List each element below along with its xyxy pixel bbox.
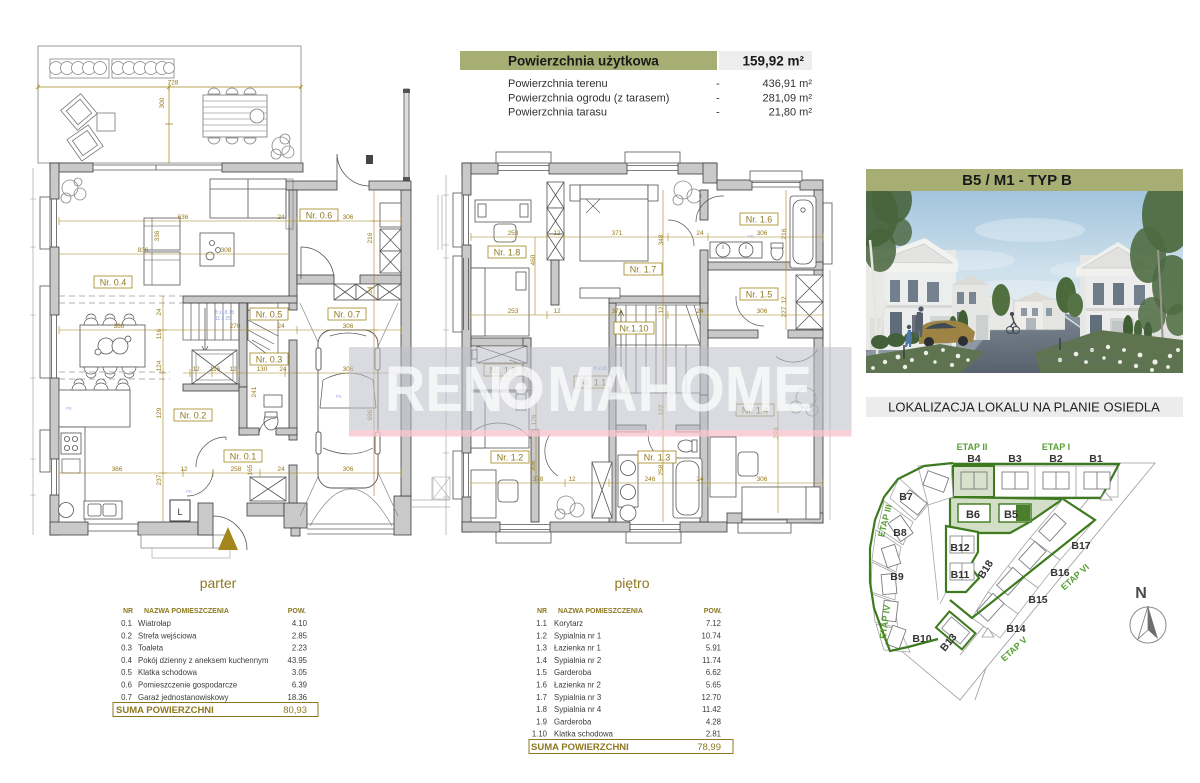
svg-text:Powierzchnia ogrodu (z tarasem: Powierzchnia ogrodu (z tarasem) [508,93,669,105]
svg-text:Sypialnia nr 3: Sypialnia nr 3 [554,693,601,702]
svg-text:Nr. 1.6: Nr. 1.6 [746,215,773,225]
svg-text:12: 12 [229,366,237,373]
svg-text:348: 348 [658,234,665,245]
svg-text:24: 24 [696,230,704,237]
svg-text:B5 / M1 - TYP B: B5 / M1 - TYP B [962,172,1072,189]
svg-text:Nr. 1.2: Nr. 1.2 [497,453,524,463]
svg-text:253: 253 [508,230,519,237]
svg-text:B12: B12 [950,542,969,554]
svg-text:L: L [177,507,182,517]
svg-text:12: 12 [568,476,576,483]
svg-text:5.91: 5.91 [706,644,721,653]
svg-text:Nr. 0.4: Nr. 0.4 [100,278,127,288]
svg-text:1.2: 1.2 [536,631,547,640]
svg-text:24: 24 [279,366,287,373]
svg-text:124: 124 [156,360,163,371]
svg-text:Nr. 0.2: Nr. 0.2 [180,411,207,421]
svg-text:Nr. 0.7: Nr. 0.7 [334,310,361,320]
svg-text:5.65: 5.65 [706,681,722,690]
svg-text:306: 306 [343,466,354,473]
svg-text:NAZWA POMIESZCZENIA: NAZWA POMIESZCZENIA [144,608,229,615]
svg-text:6.62: 6.62 [706,668,721,677]
svg-text:366: 366 [112,466,123,473]
svg-text:241: 241 [251,386,258,397]
svg-text:Pokój dzienny z aneksem kuchen: Pokój dzienny z aneksem kuchennym [138,656,268,665]
svg-text:SUMA POWIERZCHNI: SUMA POWIERZCHNI [531,742,629,753]
svg-text:371: 371 [612,230,623,237]
svg-text:B8: B8 [893,527,907,539]
svg-text:Nr. 0.1: Nr. 0.1 [230,452,257,462]
svg-text:B9: B9 [890,571,904,583]
svg-text:Sypialnia nr 1: Sypialnia nr 1 [554,631,601,640]
svg-text:308: 308 [221,247,232,254]
svg-text:REN: REN [385,353,503,425]
svg-text:Nr. 1.7: Nr. 1.7 [630,265,657,275]
svg-text:306: 306 [343,323,354,330]
svg-text:300: 300 [159,97,166,108]
svg-text:Garderoba: Garderoba [554,668,592,677]
svg-text:-: - [716,78,720,90]
svg-text:336: 336 [154,230,161,241]
svg-text:371: 371 [612,308,623,315]
svg-text:B17: B17 [1071,540,1090,552]
svg-text:Łazienka nr 1: Łazienka nr 1 [554,644,601,653]
svg-text:B7: B7 [899,491,913,503]
svg-text:227: 227 [781,306,788,317]
svg-text:Pomieszczenie gospodarcze: Pomieszczenie gospodarcze [138,681,237,690]
svg-text:216: 216 [367,232,374,243]
svg-text:130: 130 [257,366,268,373]
svg-text:N: N [1135,585,1147,602]
svg-text:10.74: 10.74 [701,631,721,640]
svg-text:129: 129 [156,407,163,418]
svg-text:Sypialnia nr 2: Sypialnia nr 2 [554,656,601,665]
svg-text:281,09 m²: 281,09 m² [762,93,812,105]
svg-text:24: 24 [367,286,374,294]
svg-text:B1: B1 [1089,453,1103,465]
svg-text:0.1: 0.1 [121,619,132,628]
svg-text:728: 728 [168,80,179,87]
svg-text:6.39: 6.39 [292,681,307,690]
svg-text:306: 306 [757,476,768,483]
svg-text:43.95: 43.95 [287,656,307,665]
svg-text:24: 24 [277,214,285,221]
svg-text:POW.: POW. [704,608,722,615]
svg-text:12.70: 12.70 [701,693,721,702]
svg-text:piętro: piętro [614,575,649,591]
svg-text:LOKALIZACJA LOKALU NA PLANIE O: LOKALIZACJA LOKALU NA PLANIE OSIEDLA [888,400,1160,415]
svg-text:80,93: 80,93 [283,705,307,716]
svg-text:237: 237 [156,474,163,485]
svg-text:Sypialnia nr 4: Sypialnia nr 4 [554,705,602,714]
svg-text:0.5: 0.5 [121,668,133,677]
svg-text:366: 366 [114,323,125,330]
svg-text:253: 253 [508,308,519,315]
svg-text:PK: PK [186,489,192,494]
svg-text:1.6: 1.6 [536,681,547,690]
svg-text:246: 246 [645,476,656,483]
svg-text:MAHOME: MAHOME [547,353,812,425]
svg-text:1.7: 1.7 [536,693,547,702]
svg-text:11.74: 11.74 [702,656,722,665]
svg-text:Wiatrołap: Wiatrołap [138,619,172,628]
svg-text:Klatka schodowa: Klatka schodowa [138,668,198,677]
svg-text:Łazienka nr 2: Łazienka nr 2 [554,681,601,690]
svg-text:B15: B15 [1028,594,1047,606]
svg-text:Nr. 0.5: Nr. 0.5 [256,310,283,320]
svg-text:836: 836 [138,247,149,254]
svg-text:Nr.1.10: Nr.1.10 [619,324,648,334]
svg-text:258: 258 [658,464,665,475]
svg-text:21,80 m²: 21,80 m² [769,107,813,119]
svg-text:378: 378 [533,476,544,483]
svg-text:Strefa wejściowa: Strefa wejściowa [138,631,197,640]
svg-text:1.3: 1.3 [536,644,547,653]
svg-text:Nr. 1.5: Nr. 1.5 [746,290,773,300]
svg-text:PK: PK [66,406,72,411]
svg-text:Garaż jednostanowiskowy: Garaż jednostanowiskowy [138,693,229,702]
svg-text:270: 270 [230,323,241,330]
svg-text:1.4: 1.4 [536,656,548,665]
svg-text:B11: B11 [951,569,970,581]
svg-text:4.10: 4.10 [292,619,308,628]
svg-text:-: - [716,93,720,105]
svg-text:B5: B5 [1004,509,1018,521]
svg-text:436,91 m²: 436,91 m² [762,78,812,90]
svg-text:12: 12 [658,306,665,314]
svg-text:4.28: 4.28 [706,717,721,726]
svg-text:0.4: 0.4 [121,656,133,665]
svg-text:0.3: 0.3 [121,644,132,653]
svg-text:3.05: 3.05 [292,668,308,677]
svg-text:PK: PK [748,234,754,239]
svg-text:NAZWA POMIESZCZENIA: NAZWA POMIESZCZENIA [558,608,643,615]
svg-text:B2: B2 [1049,453,1063,465]
svg-text:306: 306 [757,308,768,315]
svg-text:ETAP II: ETAP II [957,442,988,452]
svg-text:B3: B3 [1008,453,1022,465]
svg-text:PK: PK [336,394,342,399]
svg-text:306: 306 [343,214,354,221]
svg-text:Powierzchnia terenu: Powierzchnia terenu [508,78,608,90]
svg-text:POW.: POW. [288,608,306,615]
svg-text:parter: parter [200,575,237,591]
svg-text:24: 24 [156,308,163,316]
svg-text:1.9: 1.9 [536,717,547,726]
svg-text:B14: B14 [1006,623,1025,635]
svg-text:11.42: 11.42 [702,705,721,714]
svg-text:2.81: 2.81 [706,730,721,739]
svg-text:1.1: 1.1 [536,619,547,628]
svg-text:ETAP I: ETAP I [1042,442,1070,452]
svg-text:24: 24 [696,476,704,483]
svg-text:165: 165 [247,464,254,475]
svg-text:B4: B4 [967,453,981,465]
svg-text:1.10: 1.10 [532,730,548,739]
svg-text:Klatka schodowa: Klatka schodowa [554,730,614,739]
svg-text:1.8: 1.8 [536,705,547,714]
svg-text:Nr. 0.6: Nr. 0.6 [306,211,333,221]
svg-text:12: 12 [553,308,561,315]
svg-text:0.2: 0.2 [121,631,132,640]
svg-text:Korytarz: Korytarz [554,619,583,628]
svg-text:SUMA POWIERZCHNI: SUMA POWIERZCHNI [116,705,214,716]
svg-text:12: 12 [553,230,561,237]
svg-text:116: 116 [156,328,163,339]
svg-text:11 x 25: 11 x 25 [215,316,231,322]
svg-text:Powierzchnia użytkowa: Powierzchnia użytkowa [508,54,659,69]
svg-text:Nr. 1.3: Nr. 1.3 [644,453,671,463]
svg-text:12: 12 [781,296,788,304]
svg-text:Toaleta: Toaleta [138,644,164,653]
svg-text:Nr. 0.3: Nr. 0.3 [256,355,283,365]
svg-text:Garderoba: Garderoba [554,717,592,726]
svg-text:24: 24 [277,466,285,473]
svg-text:216: 216 [781,228,788,239]
svg-text:NR: NR [123,608,133,615]
svg-text:7.12: 7.12 [706,619,721,628]
svg-text:159,92 m²: 159,92 m² [742,54,804,69]
svg-text:636: 636 [178,214,189,221]
svg-text:0.7: 0.7 [121,693,132,702]
svg-text:B6: B6 [966,509,980,521]
svg-text:258: 258 [231,466,242,473]
svg-text:24: 24 [277,323,285,330]
svg-text:Nr. 1.8: Nr. 1.8 [494,248,521,258]
svg-text:460: 460 [530,254,537,265]
svg-text:78,99: 78,99 [697,742,721,753]
svg-text:Powierzchnia tarasu: Powierzchnia tarasu [508,107,607,119]
svg-text:0.6: 0.6 [121,681,132,690]
svg-text:1.5: 1.5 [536,668,548,677]
svg-text:12: 12 [180,466,188,473]
svg-text:12: 12 [192,366,200,373]
svg-text:116: 116 [210,366,221,373]
svg-text:NR: NR [537,608,547,615]
svg-text:-: - [716,107,720,119]
svg-text:2.85: 2.85 [292,631,308,640]
svg-text:2.23: 2.23 [292,644,307,653]
svg-text:24: 24 [696,308,704,315]
svg-text:18.36: 18.36 [287,693,307,702]
svg-text:306: 306 [757,230,768,237]
